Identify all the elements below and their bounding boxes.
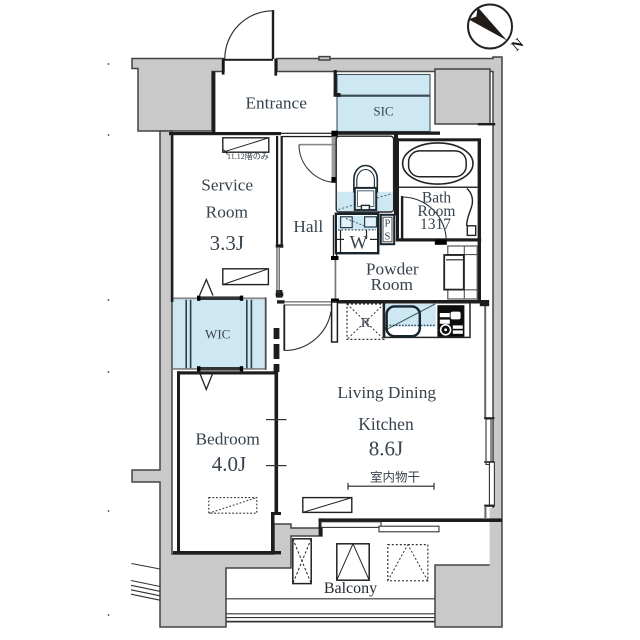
- svg-text:1317: 1317: [420, 216, 451, 233]
- svg-text:Hall: Hall: [293, 217, 323, 236]
- svg-text:Bedroom: Bedroom: [196, 430, 261, 449]
- svg-text:Entrance: Entrance: [245, 94, 307, 113]
- svg-text:P: P: [384, 219, 390, 230]
- svg-text:W: W: [350, 233, 368, 254]
- svg-text:Room: Room: [371, 275, 414, 294]
- svg-text:WIC: WIC: [205, 327, 230, 342]
- svg-text:Living Dining: Living Dining: [337, 383, 436, 402]
- svg-text:S: S: [384, 232, 390, 243]
- svg-text:3.3J: 3.3J: [210, 231, 244, 255]
- svg-text:4.0J: 4.0J: [212, 452, 246, 476]
- svg-text:Room: Room: [206, 203, 249, 222]
- svg-text:SIC: SIC: [373, 104, 393, 119]
- svg-text:室内物干: 室内物干: [370, 470, 420, 485]
- svg-text:R: R: [361, 316, 371, 331]
- svg-text:11.12階のみ: 11.12階のみ: [227, 151, 269, 161]
- svg-text:Kitchen: Kitchen: [358, 414, 414, 434]
- svg-text:8.6J: 8.6J: [369, 437, 403, 461]
- svg-text:Balcony: Balcony: [324, 580, 377, 597]
- svg-text:Service: Service: [201, 176, 253, 195]
